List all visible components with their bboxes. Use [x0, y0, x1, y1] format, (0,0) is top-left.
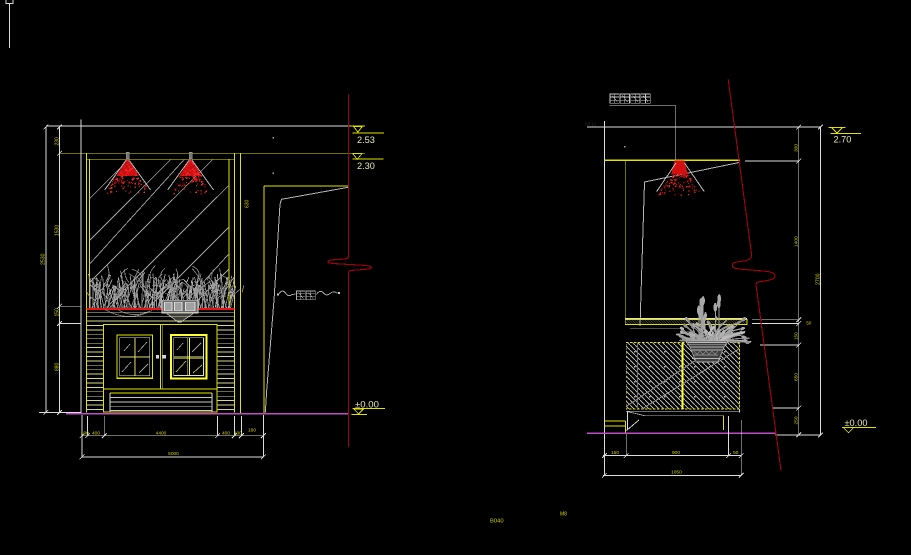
svg-text:230: 230 — [54, 137, 60, 146]
svg-text:400: 400 — [92, 431, 100, 437]
svg-text:5000: 5000 — [168, 451, 179, 457]
svg-text:100: 100 — [234, 431, 242, 437]
svg-text:±0.00: ±0.00 — [845, 418, 868, 428]
svg-text:2700: 2700 — [815, 273, 821, 285]
svg-text:1400: 1400 — [794, 236, 800, 247]
svg-text:M8: M8 — [560, 512, 567, 518]
svg-text:1050: 1050 — [671, 470, 682, 476]
svg-text:4400: 4400 — [156, 431, 167, 437]
svg-text:630: 630 — [245, 199, 251, 208]
svg-text:2.30: 2.30 — [357, 161, 375, 171]
svg-text:2530: 2530 — [41, 253, 47, 265]
svg-text:B040: B040 — [490, 519, 504, 525]
svg-text:160: 160 — [248, 428, 256, 434]
svg-text:2.70: 2.70 — [834, 135, 852, 145]
svg-text:50 1c: 50 1c — [585, 121, 597, 126]
svg-text:880: 880 — [54, 362, 60, 371]
svg-text:900: 900 — [672, 450, 680, 456]
svg-text:150: 150 — [54, 308, 60, 317]
svg-text:2.53: 2.53 — [357, 135, 375, 145]
svg-text:650: 650 — [794, 373, 800, 381]
svg-text:100: 100 — [81, 431, 89, 437]
svg-text:50: 50 — [733, 450, 739, 456]
svg-text:300: 300 — [794, 144, 800, 152]
svg-text:150: 150 — [794, 332, 799, 340]
svg-text:1530: 1530 — [54, 225, 60, 236]
svg-text:150: 150 — [611, 450, 619, 456]
svg-text:400: 400 — [222, 431, 230, 437]
svg-text:250: 250 — [794, 416, 800, 424]
svg-text:50: 50 — [806, 321, 812, 326]
